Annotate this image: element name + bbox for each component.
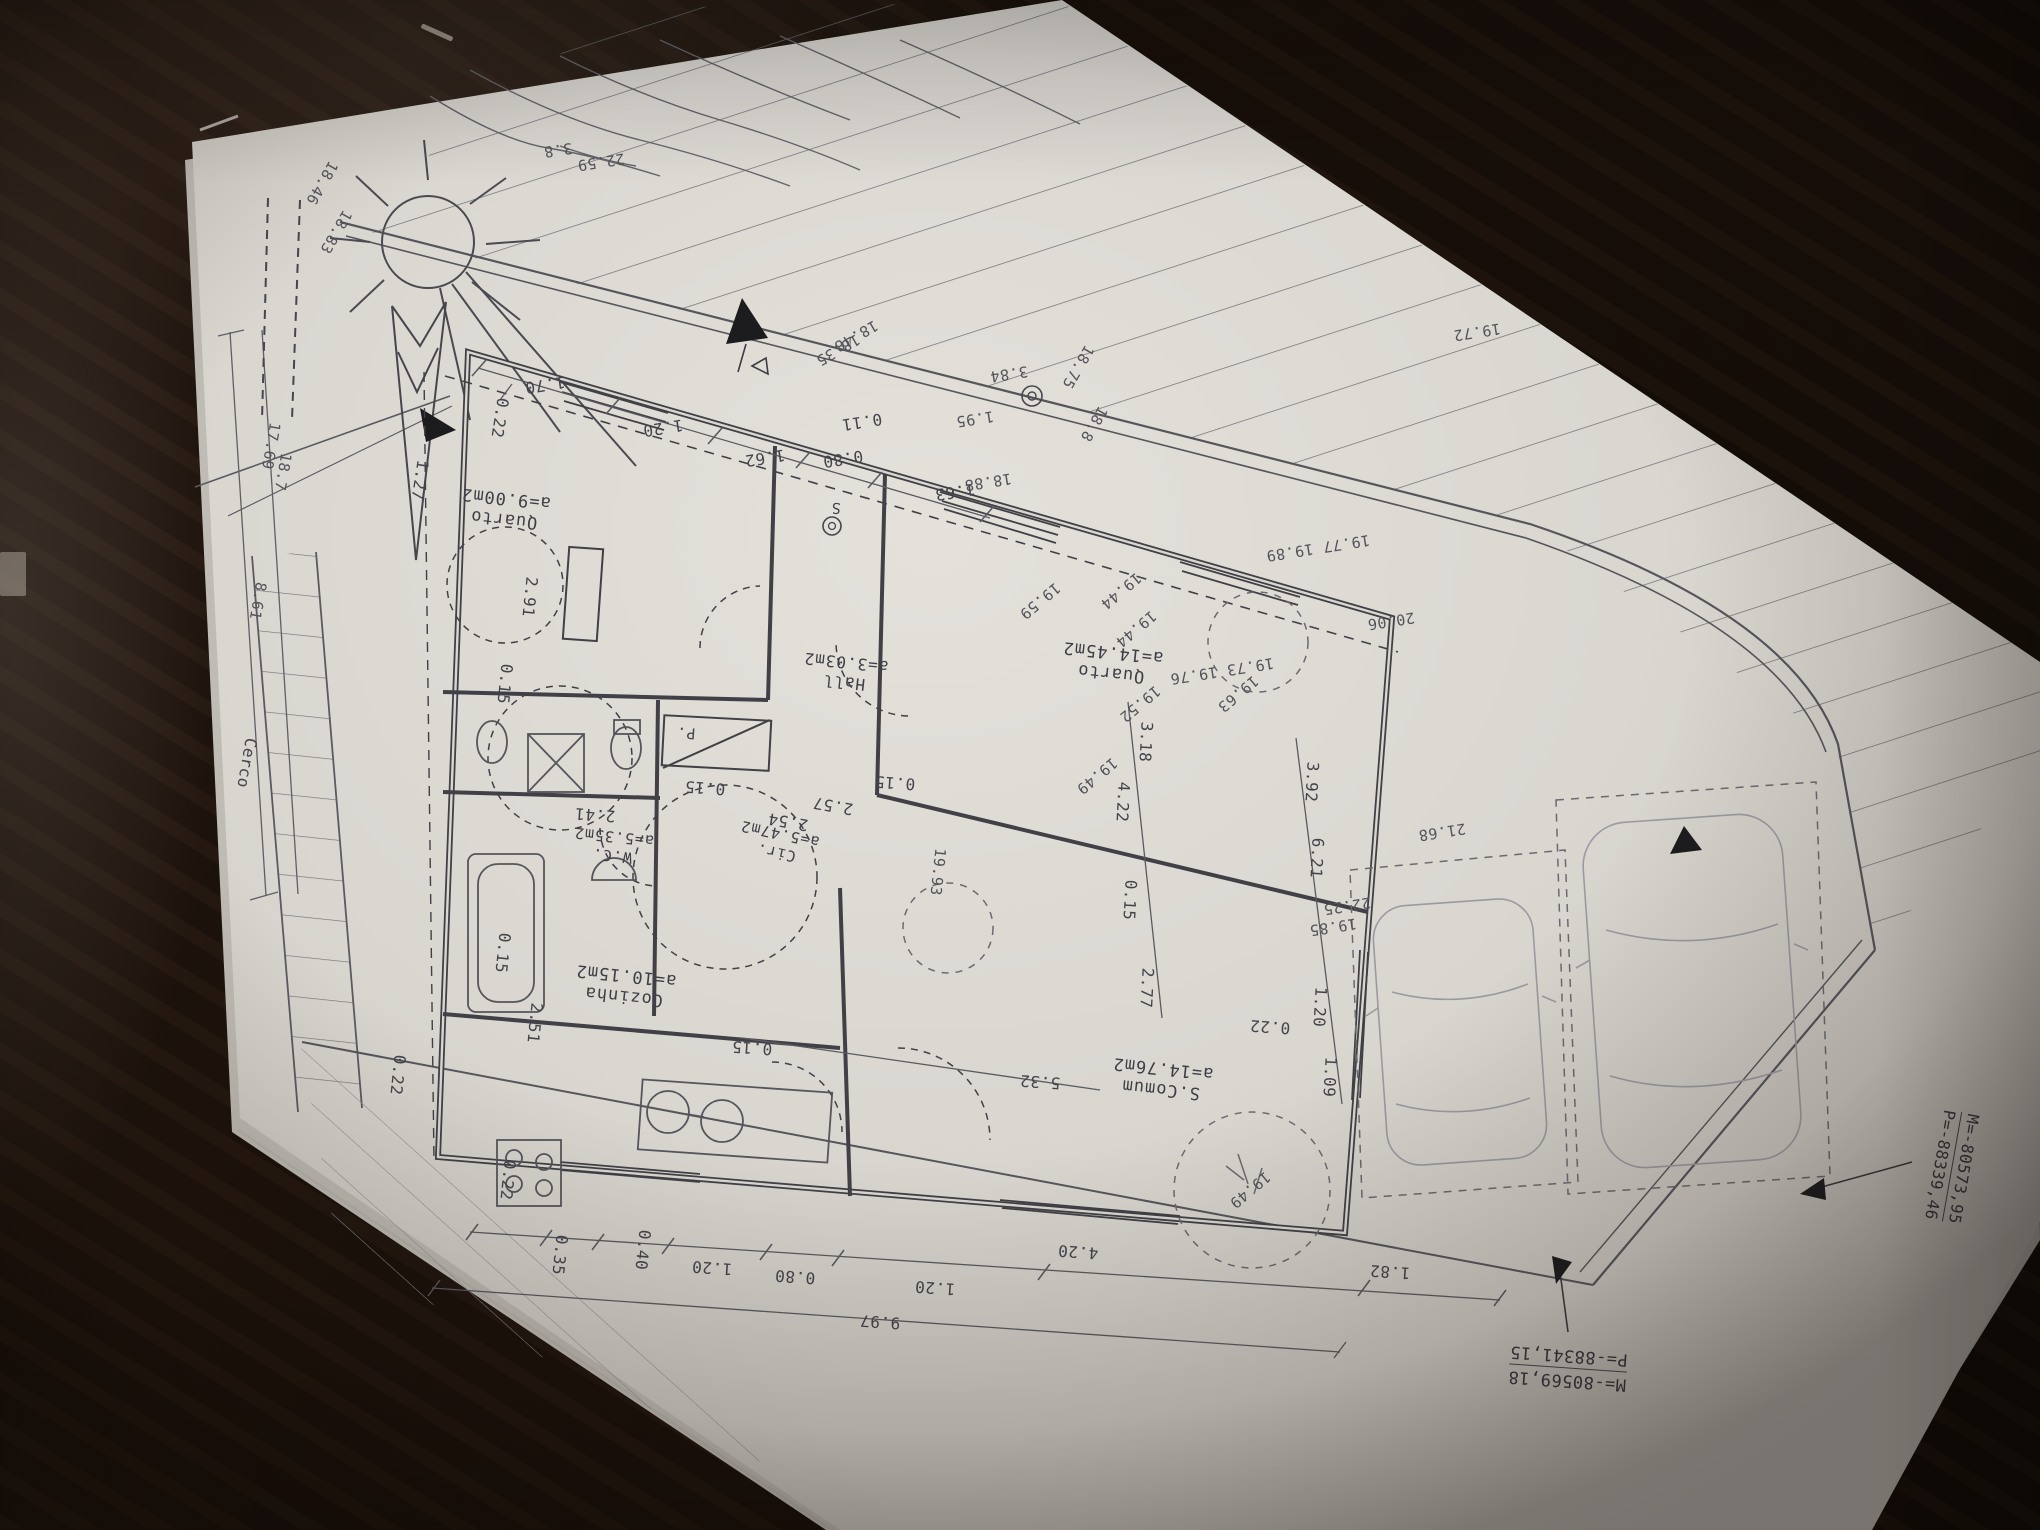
dimension-label: 0.15 xyxy=(684,777,726,799)
photo-of-floor-plan: Quarto a=9.00m2 Hall a=3.03m2 Quarto a=1… xyxy=(0,0,2040,1530)
dimension-label: 9.97 xyxy=(859,1311,901,1333)
dimension-label: 1.20 xyxy=(1309,986,1330,1027)
dimension-label: 1.20 xyxy=(914,1277,956,1299)
coordinate-block-1: M=-80569,18 P=-88341,15 xyxy=(1508,1341,1629,1394)
dimension-label: 0.80 xyxy=(774,1266,816,1288)
dimension-label: 2.77 xyxy=(1136,967,1157,1008)
dimension-label: 1.09 xyxy=(1319,1056,1340,1097)
closet-label: P. xyxy=(676,723,696,742)
dimension-label: 0.22 xyxy=(1249,1016,1291,1038)
dimension-label: 6.21 xyxy=(1306,837,1327,878)
dimension-label: 0.15 xyxy=(874,772,916,794)
switch-symbol-label: S xyxy=(831,499,842,518)
site-plan-drawing xyxy=(0,0,2040,1530)
dimension-label: 4.22 xyxy=(1112,781,1133,822)
dimension-label: 1.20 xyxy=(691,1257,733,1279)
dimension-label: 2.41 xyxy=(574,804,616,826)
dimension-label: 0.15 xyxy=(1119,879,1140,920)
dimension-label: 5.32 xyxy=(1019,1071,1061,1093)
dimension-label: 0.15 xyxy=(731,1037,773,1059)
dimension-label: 3.18 xyxy=(1135,721,1156,762)
dimension-label: 4.20 xyxy=(1057,1241,1099,1263)
dimension-label: 3.92 xyxy=(1301,761,1322,802)
table-scratch xyxy=(0,552,26,596)
dimension-label: 1.82 xyxy=(1369,1261,1411,1283)
